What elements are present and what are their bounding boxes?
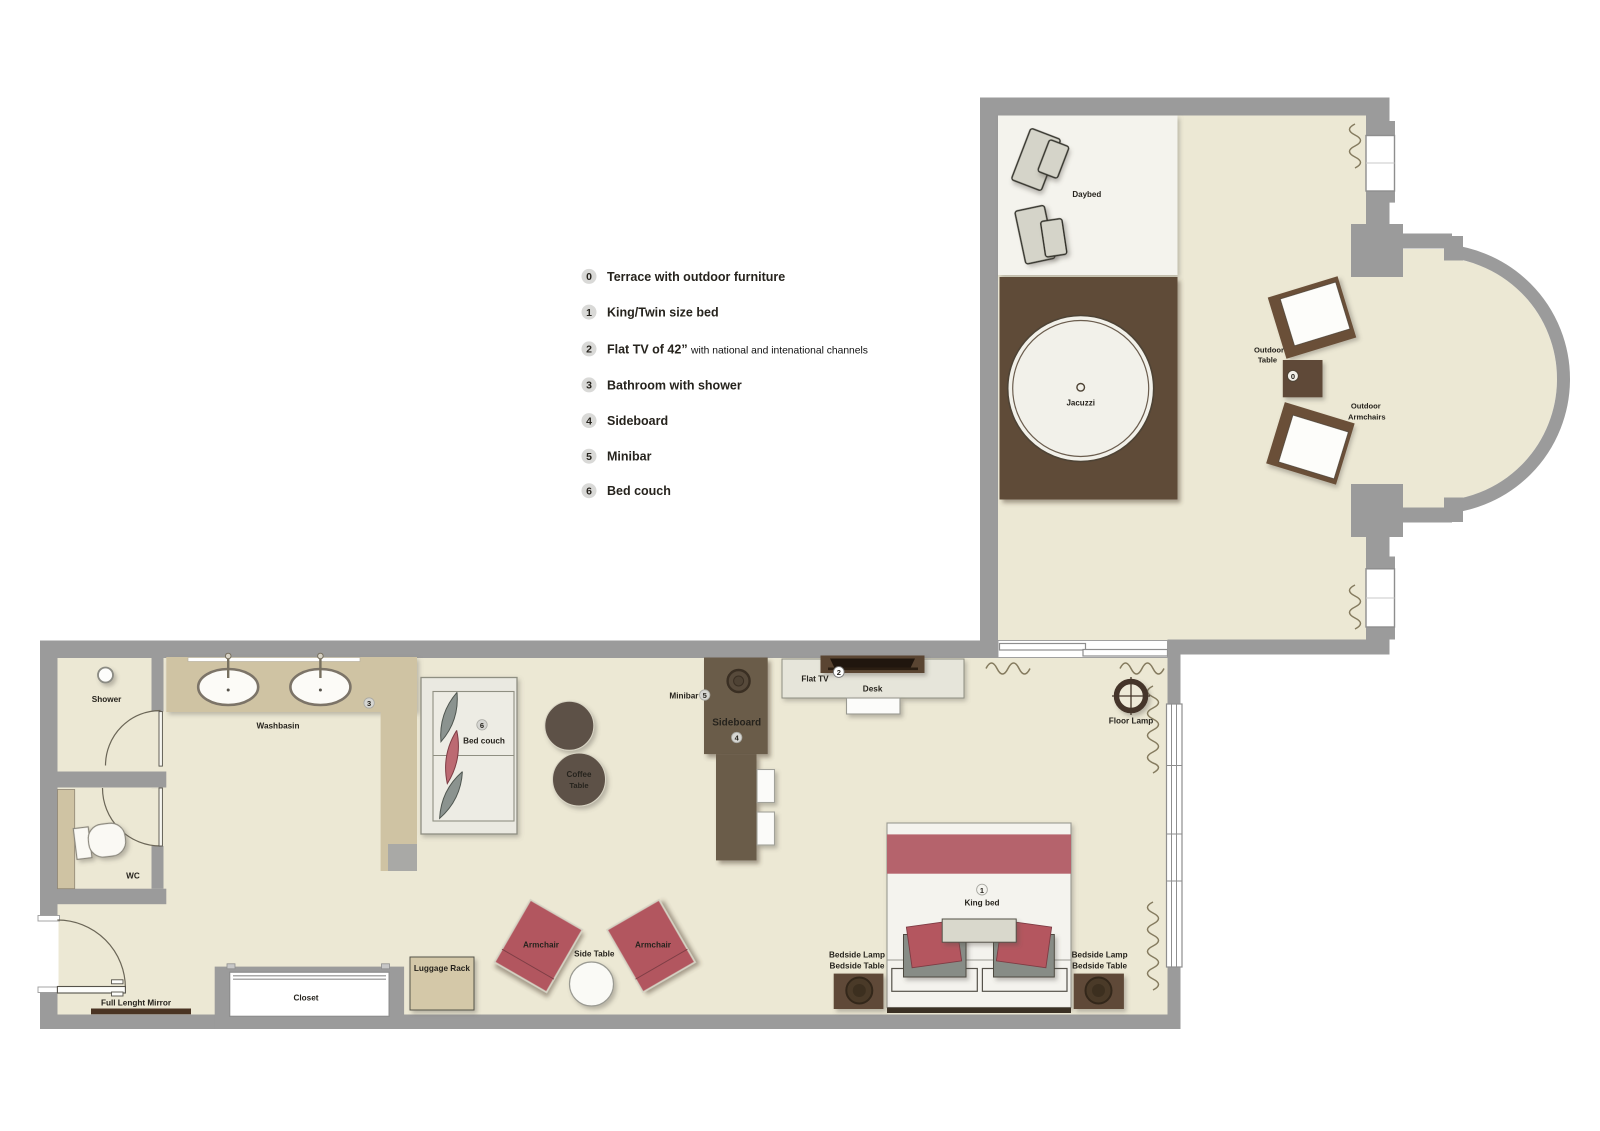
svg-text:King bed: King bed bbox=[964, 899, 999, 908]
svg-text:Full Lenght Mirror: Full Lenght Mirror bbox=[101, 999, 172, 1008]
svg-text:2: 2 bbox=[837, 668, 841, 677]
svg-text:Flat TV of 42” with national a: Flat TV of 42” with national and intenat… bbox=[607, 342, 868, 356]
svg-text:Flat TV: Flat TV bbox=[801, 675, 829, 684]
svg-text:Sideboard: Sideboard bbox=[607, 414, 668, 428]
svg-text:Desk: Desk bbox=[863, 685, 883, 694]
svg-text:Terrace with outdoor furniture: Terrace with outdoor furniture bbox=[607, 270, 785, 284]
svg-text:Minibar: Minibar bbox=[669, 691, 699, 700]
svg-text:2: 2 bbox=[586, 344, 592, 356]
svg-text:Armchair: Armchair bbox=[523, 941, 560, 950]
svg-text:Shower: Shower bbox=[92, 695, 122, 704]
svg-text:0: 0 bbox=[1291, 372, 1295, 381]
svg-text:5: 5 bbox=[586, 451, 592, 463]
svg-text:Side Table: Side Table bbox=[574, 950, 615, 959]
svg-text:1: 1 bbox=[586, 307, 592, 319]
svg-text:Sideboard: Sideboard bbox=[712, 718, 761, 729]
svg-text:Outdoor: Outdoor bbox=[1254, 346, 1284, 355]
svg-text:Bed couch: Bed couch bbox=[463, 737, 505, 746]
svg-text:Closet: Closet bbox=[293, 994, 318, 1003]
svg-text:Table: Table bbox=[1258, 356, 1277, 365]
svg-text:4: 4 bbox=[586, 415, 592, 427]
svg-text:Bathroom with shower: Bathroom with shower bbox=[607, 378, 742, 392]
svg-text:Table: Table bbox=[569, 781, 588, 790]
svg-text:Bedside Table: Bedside Table bbox=[1072, 962, 1127, 971]
svg-text:1: 1 bbox=[980, 886, 984, 895]
svg-text:King/Twin size bed: King/Twin size bed bbox=[607, 306, 719, 320]
svg-text:Bedside Table: Bedside Table bbox=[830, 962, 885, 971]
svg-text:0: 0 bbox=[586, 271, 592, 283]
svg-text:Outdoor: Outdoor bbox=[1351, 402, 1381, 411]
svg-text:3: 3 bbox=[586, 380, 592, 392]
svg-text:6: 6 bbox=[480, 721, 484, 730]
svg-text:3: 3 bbox=[367, 699, 371, 708]
svg-text:Daybed: Daybed bbox=[1072, 190, 1101, 199]
svg-text:Washbasin: Washbasin bbox=[257, 722, 300, 731]
svg-text:Floor Lamp: Floor Lamp bbox=[1109, 717, 1154, 726]
svg-text:Bed couch: Bed couch bbox=[607, 484, 671, 498]
svg-text:Coffee: Coffee bbox=[567, 770, 592, 779]
svg-text:6: 6 bbox=[586, 485, 592, 497]
svg-text:Bedside Lamp: Bedside Lamp bbox=[1072, 951, 1128, 960]
svg-text:Armchair: Armchair bbox=[635, 941, 672, 950]
svg-text:Luggage Rack: Luggage Rack bbox=[414, 964, 470, 973]
svg-text:Minibar: Minibar bbox=[607, 450, 652, 464]
svg-text:5: 5 bbox=[703, 691, 707, 700]
svg-text:WC: WC bbox=[126, 872, 140, 881]
svg-text:Armchairs: Armchairs bbox=[1348, 413, 1386, 422]
svg-text:Jacuzzi: Jacuzzi bbox=[1066, 399, 1094, 408]
svg-text:Bedside Lamp: Bedside Lamp bbox=[829, 951, 885, 960]
